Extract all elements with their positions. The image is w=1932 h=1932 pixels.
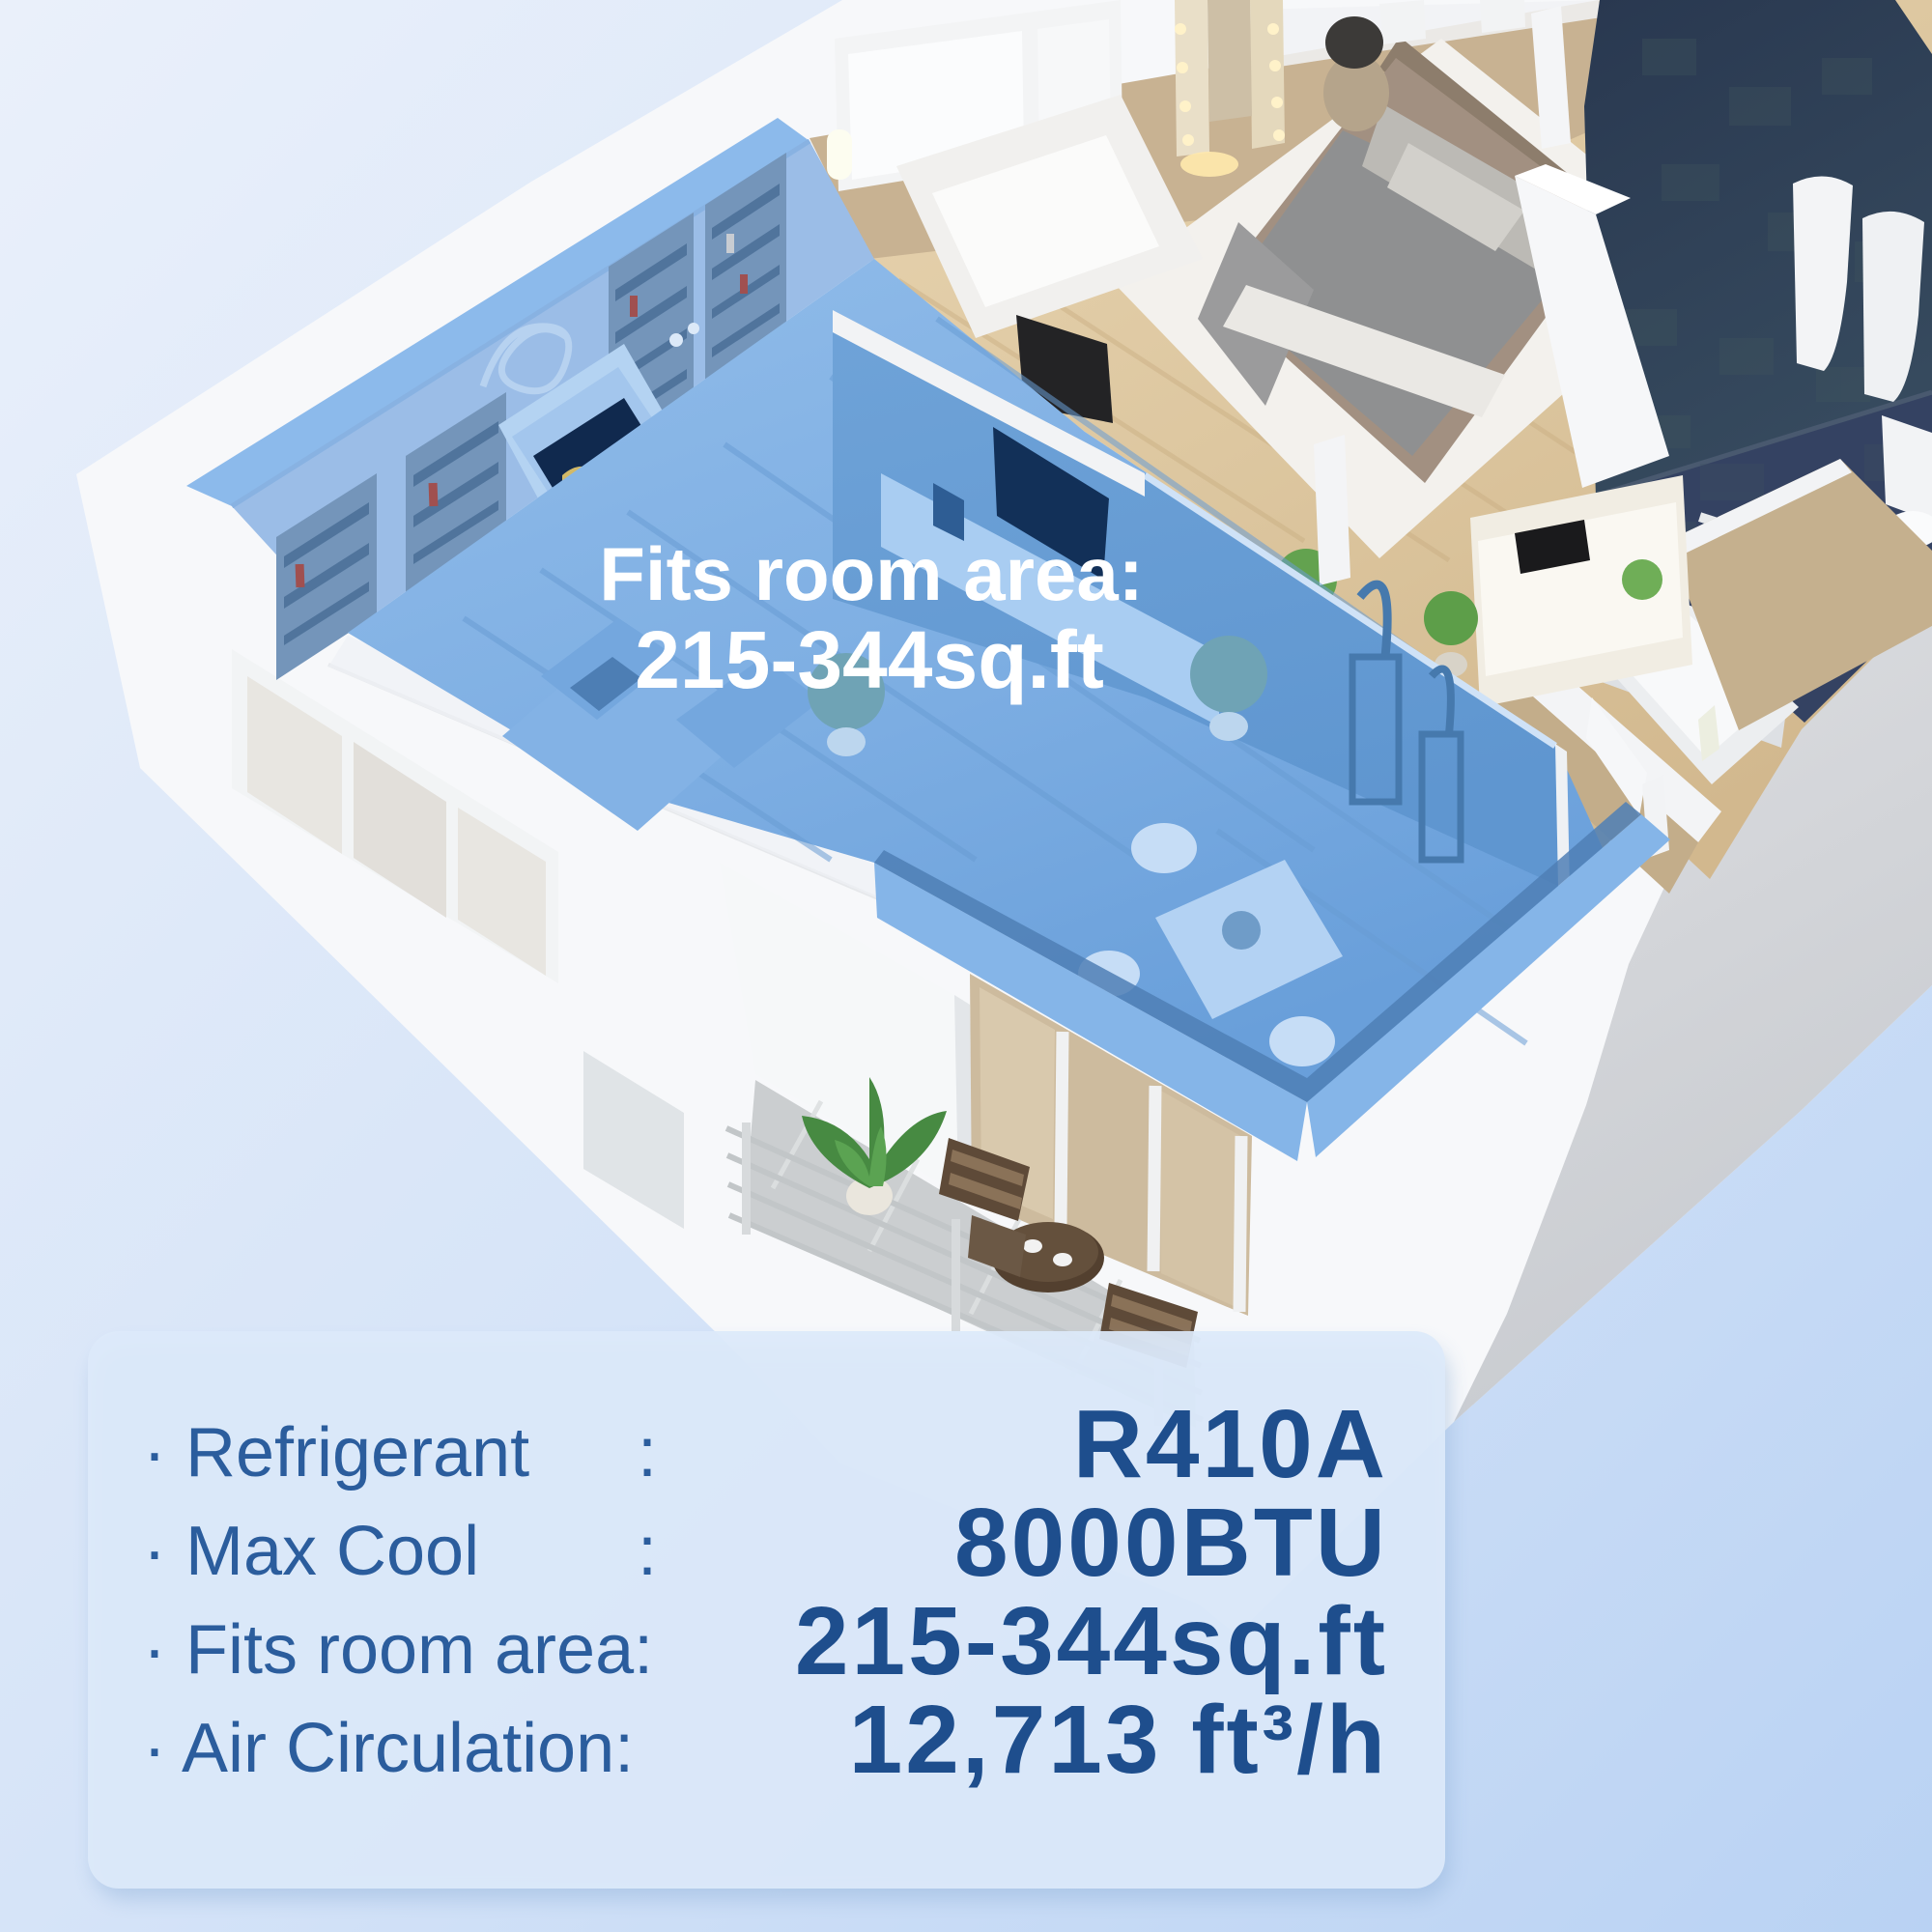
svg-text:R410A: R410A	[1073, 1390, 1388, 1498]
svg-text:Fits room area:: Fits room area:	[599, 531, 1143, 616]
svg-text:8000BTU: 8000BTU	[954, 1489, 1388, 1597]
svg-text:12,713 ft³/h: 12,713 ft³/h	[849, 1686, 1388, 1794]
svg-text:· Fits room area:: · Fits room area:	[143, 1611, 653, 1689]
svg-text::: :	[638, 1414, 657, 1492]
svg-text::: :	[638, 1513, 657, 1590]
svg-text:215-344sq.ft: 215-344sq.ft	[795, 1587, 1388, 1695]
svg-text:· Max Cool: · Max Cool	[143, 1513, 479, 1590]
svg-text:215-344sq.ft: 215-344sq.ft	[635, 614, 1104, 705]
svg-text:· Air Circulation:: · Air Circulation:	[143, 1710, 634, 1787]
svg-text:· Refrigerant: · Refrigerant	[143, 1414, 529, 1492]
